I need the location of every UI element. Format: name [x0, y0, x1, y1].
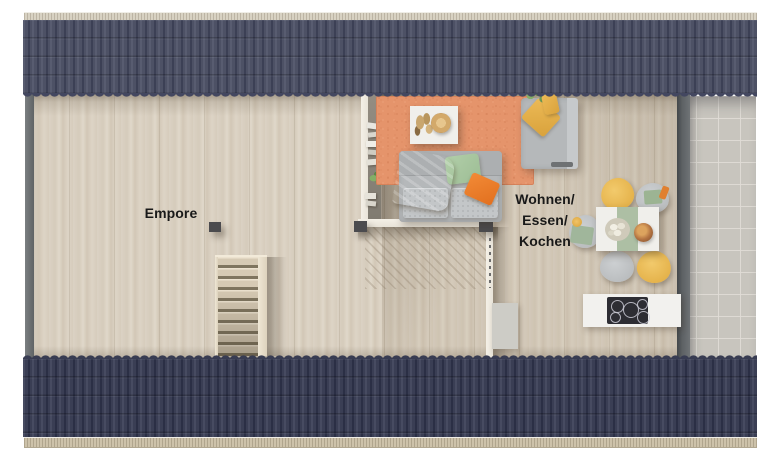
exterior-wall-left — [25, 92, 34, 358]
stair-railing — [258, 257, 267, 356]
room-label-empore: Empore — [131, 203, 211, 224]
room-label-line: Wohnen/ — [493, 189, 597, 210]
rain-gutter-bottom — [24, 437, 757, 448]
tall-cabinet — [492, 303, 518, 349]
wall-edge-dashes — [489, 238, 491, 288]
room-label-line: Essen/ — [493, 210, 597, 231]
wall-shadow — [358, 227, 498, 242]
shelf-book — [366, 200, 376, 206]
burner-ring — [637, 299, 648, 310]
room-label-wohnen: Wohnen/ Essen/ Kochen — [493, 189, 597, 252]
sofa — [399, 151, 502, 222]
woven-tray — [431, 113, 451, 133]
roof-tile-edge-bottom — [23, 352, 757, 359]
room-label-line: Kochen — [493, 231, 597, 252]
terrace-tiles — [690, 96, 756, 358]
dining-table — [596, 207, 659, 251]
stair-railing-shadow — [267, 257, 287, 356]
staircase-shading — [218, 257, 258, 356]
kitchen-counter — [583, 294, 681, 327]
wall-end-cap — [479, 221, 493, 232]
flower-bouquet — [605, 218, 630, 241]
cooktop — [607, 297, 648, 324]
wall-end-cap — [354, 221, 367, 232]
floor-plan-canvas: Empore Wohnen/ Essen/ Kochen — [0, 0, 775, 463]
food-bowl — [634, 223, 653, 242]
roof-tile-edge-top — [23, 93, 757, 100]
daybed-trim — [551, 162, 573, 167]
roof-band-top — [23, 20, 757, 93]
throw-blanket — [392, 149, 457, 213]
roof-band-bottom — [23, 359, 757, 437]
burner-ring — [637, 311, 650, 324]
burner-ring — [611, 300, 624, 313]
daybed-edge — [567, 98, 578, 169]
burner-ring — [610, 312, 621, 323]
shelf-book — [365, 193, 376, 199]
